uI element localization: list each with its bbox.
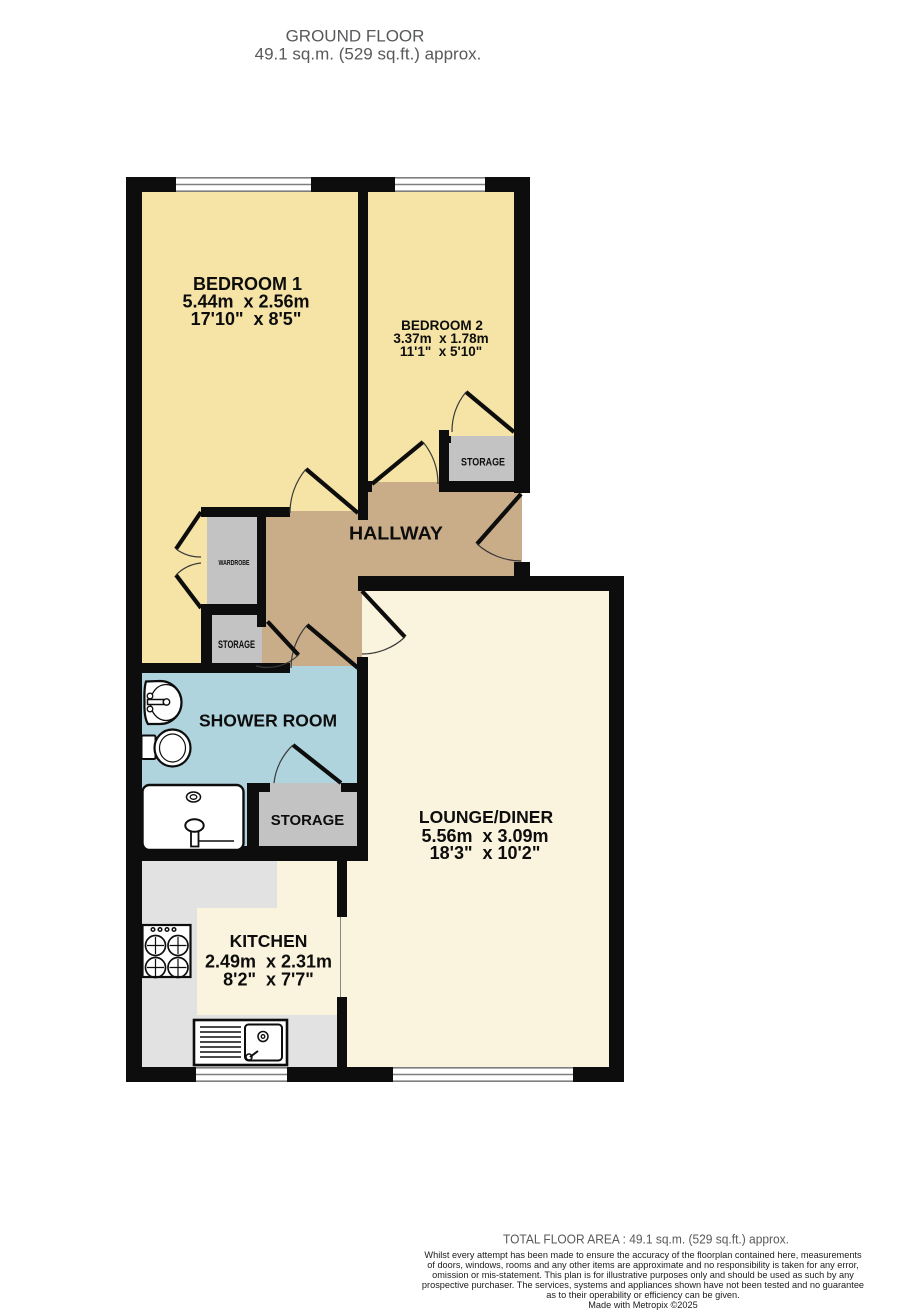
svg-text:WARDROBE: WARDROBE — [219, 560, 250, 567]
svg-text:SHOWER ROOM: SHOWER ROOM — [199, 711, 337, 731]
svg-text:KITCHEN: KITCHEN — [230, 931, 308, 951]
svg-text:49.1 sq.m. (529 sq.ft.) approx: 49.1 sq.m. (529 sq.ft.) approx. — [255, 45, 482, 64]
svg-text:STORAGE: STORAGE — [461, 457, 505, 469]
svg-text:STORAGE: STORAGE — [218, 639, 255, 651]
svg-text:GROUND FLOOR: GROUND FLOOR — [286, 27, 425, 46]
svg-text:17'10" x 8'5": 17'10" x 8'5" — [191, 309, 302, 329]
svg-text:2.49m x 2.31m: 2.49m x 2.31m — [205, 952, 332, 972]
svg-text:as to their operability or eff: as to their operability or efficiency ca… — [546, 1290, 739, 1300]
svg-text:18'3" x 10'2": 18'3" x 10'2" — [430, 843, 541, 863]
svg-text:Made with Metropix ©2025: Made with Metropix ©2025 — [588, 1300, 697, 1310]
svg-text:TOTAL FLOOR AREA : 49.1 sq.m.: TOTAL FLOOR AREA : 49.1 sq.m. (529 sq.ft… — [503, 1233, 789, 1247]
svg-text:STORAGE: STORAGE — [271, 813, 345, 829]
svg-text:HALLWAY: HALLWAY — [349, 523, 444, 544]
svg-text:Whilst every attempt has been: Whilst every attempt has been made to en… — [424, 1250, 862, 1260]
svg-text:of doors, windows, rooms and a: of doors, windows, rooms and any other i… — [427, 1260, 859, 1270]
svg-text:prospective purchaser. The ser: prospective purchaser. The services, sys… — [422, 1280, 864, 1290]
svg-text:LOUNGE/DINER: LOUNGE/DINER — [419, 807, 554, 827]
svg-text:8'2" x 7'7": 8'2" x 7'7" — [223, 970, 314, 990]
svg-text:omission or mis-statement. Thi: omission or mis-statement. This plan is … — [432, 1270, 854, 1280]
svg-text:11'1" x 5'10": 11'1" x 5'10" — [400, 344, 482, 359]
